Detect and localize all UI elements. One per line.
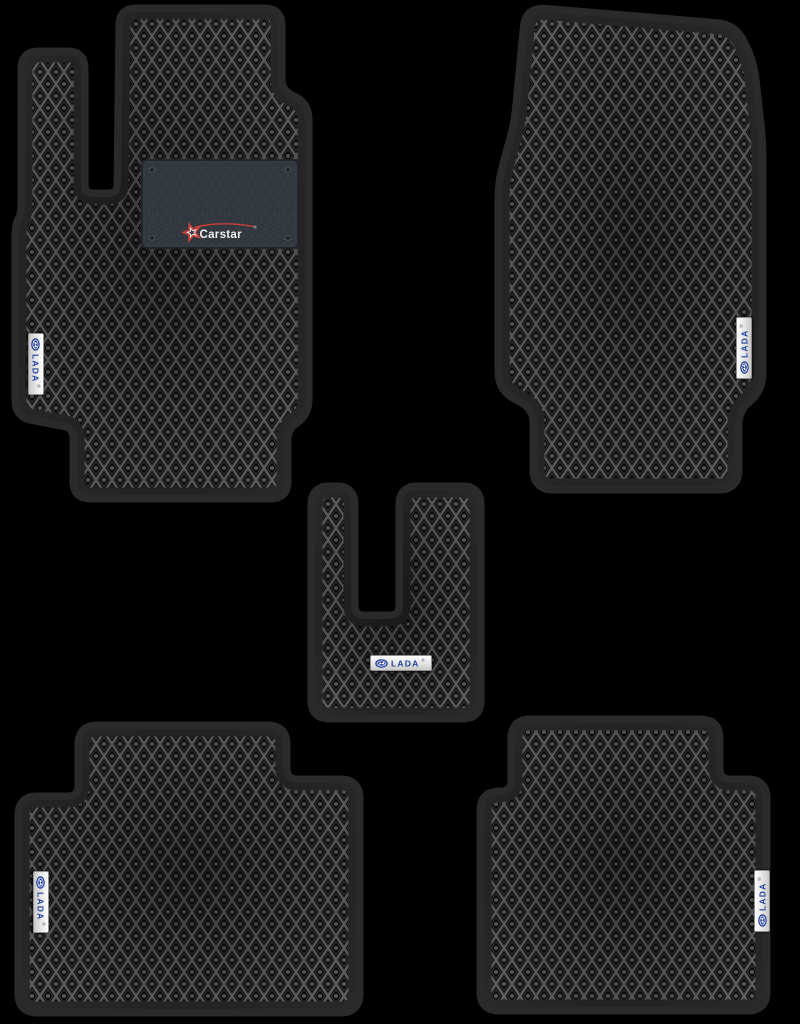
rear-left-mat-shading [22, 729, 356, 1009]
lada-registered-mark: ® [421, 658, 424, 663]
mats-canvas [0, 0, 800, 1024]
lada-logo-icon [37, 876, 46, 889]
lada-registered-mark: ® [42, 922, 47, 925]
lada-badge-text: LADA [758, 883, 767, 911]
lada-logo-icon [32, 338, 41, 351]
carstar-registered-mark: ® [254, 224, 258, 231]
carstar-swoosh [195, 224, 254, 227]
rivet-icon [149, 167, 154, 172]
lada-registered-mark: ® [739, 324, 744, 327]
carstar-logo: Carstar ® [182, 219, 260, 243]
rivet-icon [149, 235, 154, 240]
passenger-mat-shading [502, 12, 759, 486]
lada-badge-text: LADA [36, 892, 45, 920]
rivet-icon [285, 235, 290, 240]
lada-logo-icon [375, 659, 388, 668]
carstar-brand-text: Carstar [200, 229, 243, 241]
lada-badge-passenger: LADA ® [736, 317, 752, 379]
floor-mat-set-image: Carstar ® LADA ® LADA ® LADA ® [0, 0, 800, 1024]
lada-badge-rear-left: LADA ® [33, 871, 49, 933]
lada-badge-text: LADA [391, 659, 419, 668]
lada-badge-text: LADA [740, 330, 749, 358]
lada-badge-tunnel: LADA ® [370, 655, 432, 671]
lada-badge-rear-right: LADA ® [754, 870, 770, 932]
lada-registered-mark: ® [757, 877, 762, 880]
rivet-icon [285, 167, 290, 172]
lada-logo-icon [740, 361, 749, 374]
lada-registered-mark: ® [37, 384, 42, 387]
lada-logo-icon [758, 914, 767, 927]
lada-badge-driver: LADA ® [28, 333, 44, 395]
lada-badge-text: LADA [31, 354, 40, 382]
